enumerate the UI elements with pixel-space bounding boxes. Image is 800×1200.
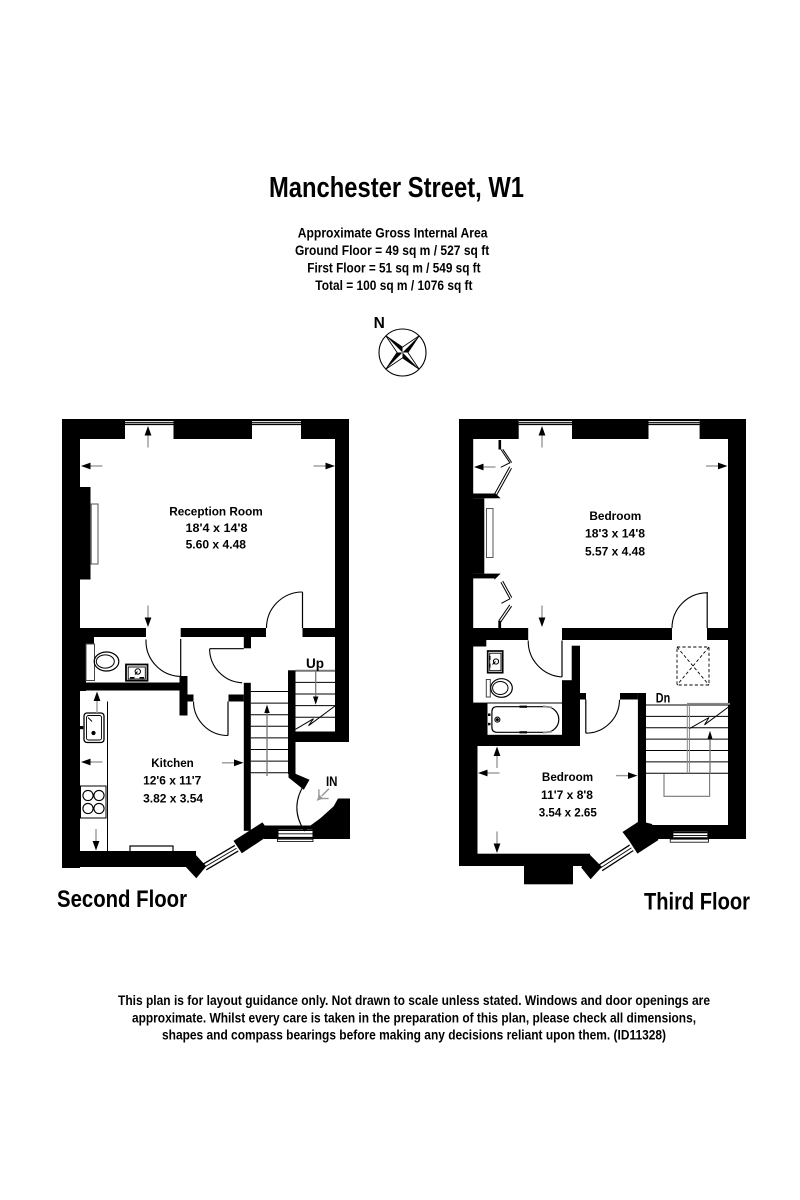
svg-text:N: N (374, 315, 385, 332)
svg-text:Manchester Street, W1: Manchester Street, W1 (269, 172, 524, 204)
svg-text:Total = 100 sq m / 1076 sq ft: Total = 100 sq m / 1076 sq ft (315, 277, 472, 293)
svg-text:This plan is for layout guidan: This plan is for layout guidance only. N… (118, 993, 710, 1008)
svg-text:Bedroom: Bedroom (589, 509, 641, 523)
svg-text:5.57 x 4.48: 5.57 x 4.48 (585, 545, 645, 559)
svg-text:11'7 x 8'8: 11'7 x 8'8 (541, 788, 593, 802)
svg-text:12'6 x 11'7: 12'6 x 11'7 (143, 773, 201, 787)
svg-text:First Floor = 51 sq m / 549 sq: First Floor = 51 sq m / 549 sq ft (307, 260, 481, 276)
svg-text:Bedroom: Bedroom (542, 770, 593, 784)
svg-text:3.54 x 2.65: 3.54 x 2.65 (539, 805, 597, 819)
svg-text:Approximate Gross Internal Are: Approximate Gross Internal Area (298, 225, 488, 241)
svg-text:18'4 x 14'8: 18'4 x 14'8 (186, 521, 248, 535)
svg-text:Up: Up (306, 656, 324, 671)
svg-text:Reception Room: Reception Room (169, 505, 263, 519)
svg-text:Kitchen: Kitchen (151, 756, 194, 770)
svg-text:Dn: Dn (656, 691, 670, 706)
svg-text:approximate. Whilst every care: approximate. Whilst every care is taken … (132, 1010, 696, 1025)
svg-text:Third Floor: Third Floor (644, 889, 750, 916)
svg-text:18'3 x 14'8: 18'3 x 14'8 (585, 526, 645, 540)
svg-text:3.82 x 3.54: 3.82 x 3.54 (143, 791, 203, 805)
svg-text:5.60 x 4.48: 5.60 x 4.48 (186, 538, 246, 552)
svg-text:IN: IN (326, 774, 338, 789)
svg-text:Second Floor: Second Floor (57, 886, 187, 913)
svg-text:shapes and compass bearings be: shapes and compass bearings before makin… (162, 1028, 666, 1043)
svg-text:Ground Floor = 49 sq m / 527 s: Ground Floor = 49 sq m / 527 sq ft (295, 242, 490, 258)
